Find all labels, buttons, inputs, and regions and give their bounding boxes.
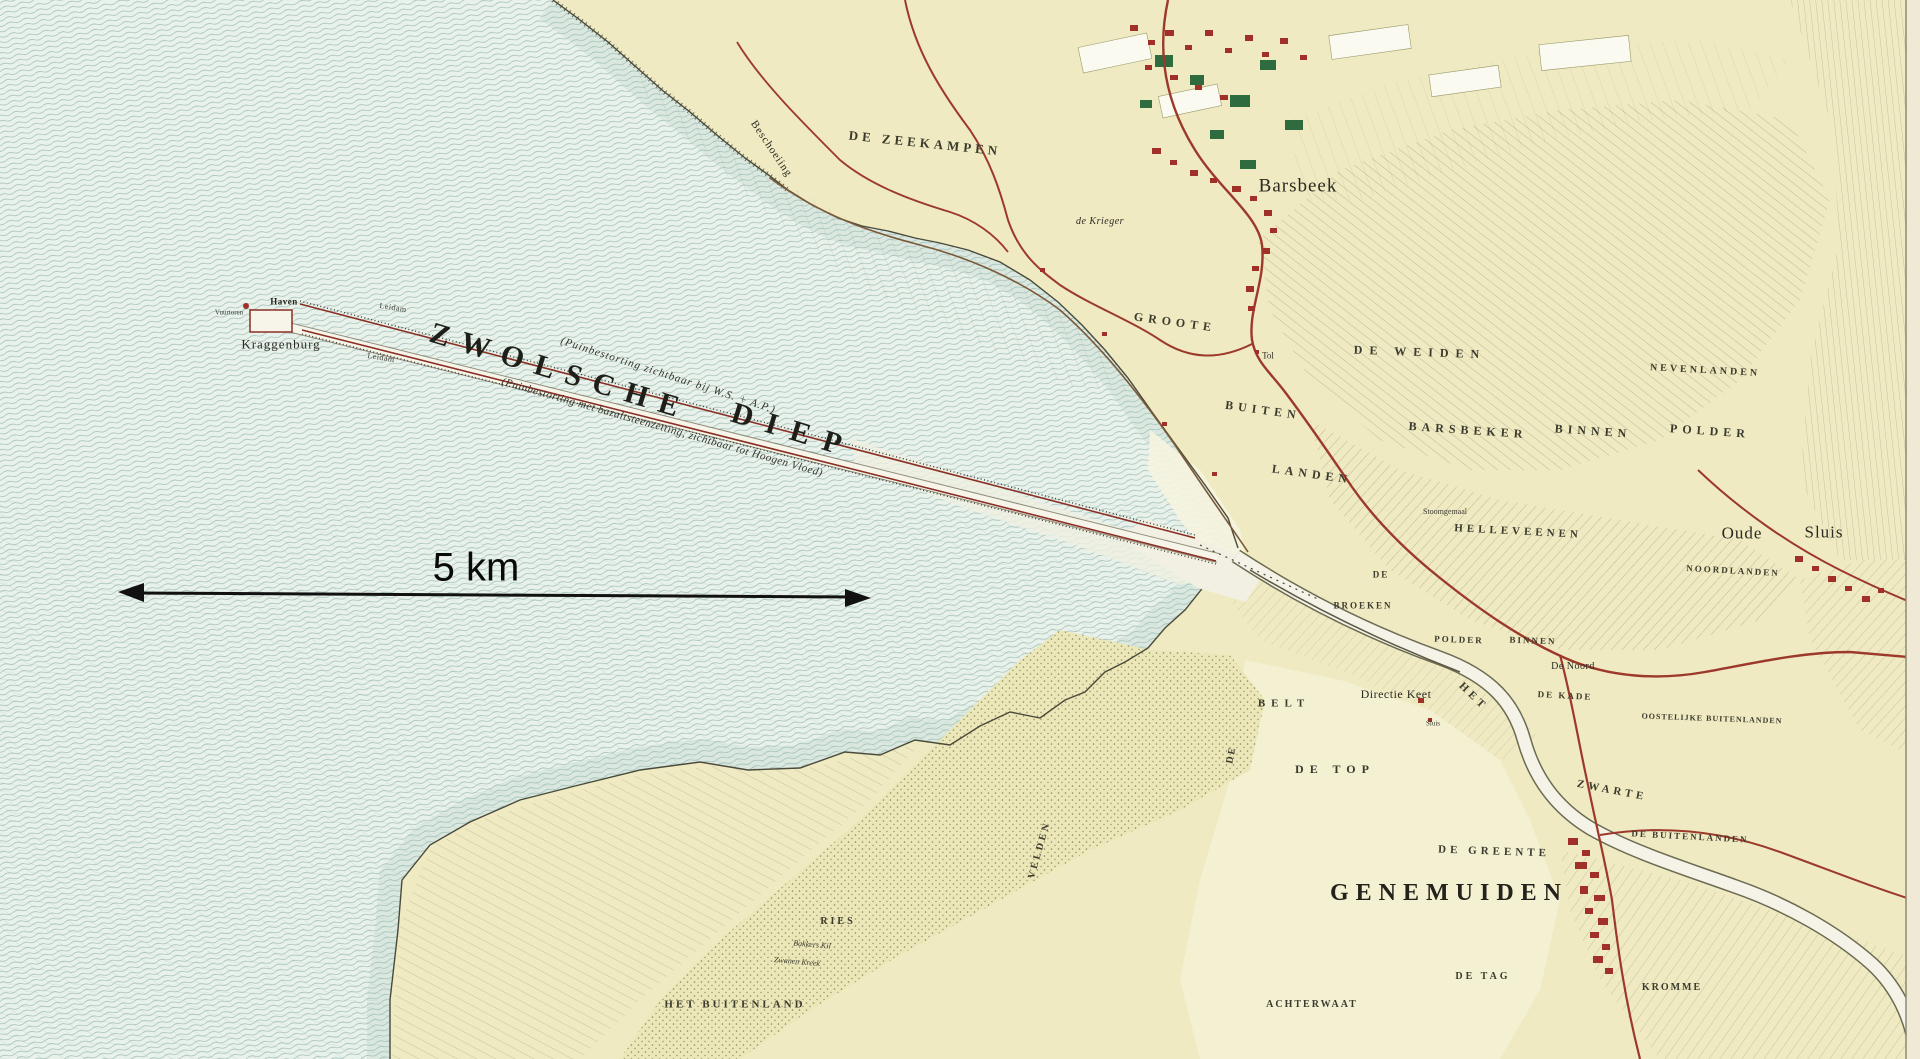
historical-map-canvas: ZWOLSCHEDIEP(Puinbestorting zichtbaar bi… (0, 0, 1920, 1059)
map-sheet-edge (1906, 0, 1920, 1059)
kraggenburg-lighthouse (243, 303, 249, 309)
map-graphic (0, 0, 1920, 1059)
kraggenburg-harbor (250, 310, 292, 332)
scale-text: 5 km (433, 546, 520, 591)
